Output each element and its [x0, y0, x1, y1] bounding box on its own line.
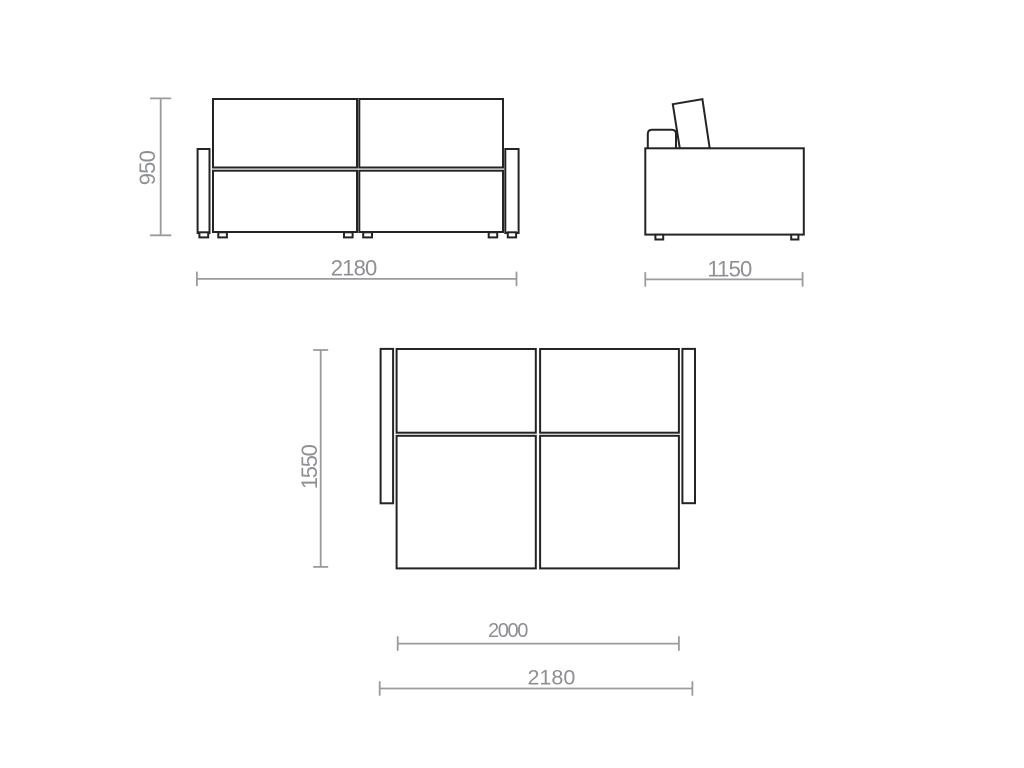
svg-text:2180: 2180 [527, 665, 575, 689]
svg-text:1550: 1550 [297, 444, 322, 489]
svg-text:950: 950 [135, 150, 160, 185]
svg-text:2180: 2180 [331, 256, 377, 281]
svg-text:2000: 2000 [488, 620, 528, 642]
svg-text:1150: 1150 [707, 257, 752, 282]
